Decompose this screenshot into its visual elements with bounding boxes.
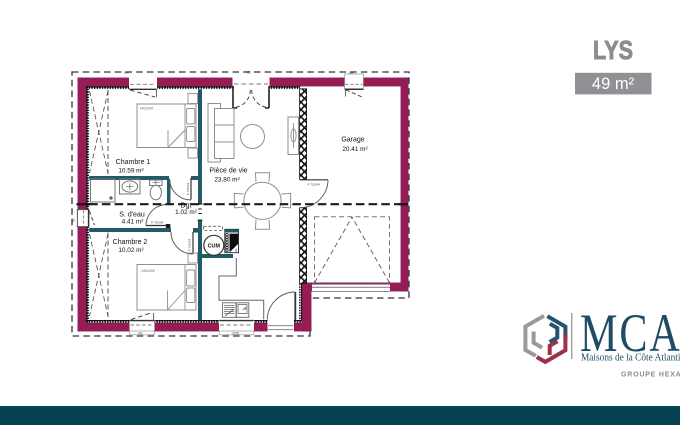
svg-text:VB: VB <box>246 71 251 75</box>
svg-text:1.02 m²: 1.02 m² <box>175 209 197 216</box>
svg-text:S. d'eau: S. d'eau <box>119 212 145 219</box>
svg-text:LYS: LYS <box>593 35 633 65</box>
svg-text:CUM: CUM <box>208 243 221 249</box>
svg-text:20.41 m²: 20.41 m² <box>342 146 367 153</box>
svg-text:P 75/204: P 75/204 <box>308 183 321 187</box>
svg-text:10.59 m²: 10.59 m² <box>118 168 143 175</box>
svg-text:Chambre 1: Chambre 1 <box>116 159 151 166</box>
svg-text:Maisons de la Côte Atlantique: Maisons de la Côte Atlantique <box>581 352 680 364</box>
svg-text:VR: VR <box>124 71 129 75</box>
svg-text:60: 60 <box>72 218 76 222</box>
svg-text:23.80 m²: 23.80 m² <box>214 177 239 184</box>
svg-text:Garage: Garage <box>341 137 364 144</box>
svg-text:10.02 m²: 10.02 m² <box>118 247 143 254</box>
svg-text:2F60: 2F60 <box>232 332 239 336</box>
svg-text:140x200: 140x200 <box>141 269 155 273</box>
svg-text:VB: VB <box>349 71 354 75</box>
svg-text:P 75/204: P 75/204 <box>151 221 164 225</box>
svg-text:Chambre 2: Chambre 2 <box>113 239 148 246</box>
svg-text:P 75/204: P 75/204 <box>188 238 192 251</box>
svg-text:Pièce de vie: Pièce de vie <box>209 168 247 175</box>
svg-text:VR: VR <box>138 332 143 336</box>
svg-text:49 m²: 49 m² <box>592 75 635 93</box>
svg-text:4.41 m²: 4.41 m² <box>122 219 144 226</box>
svg-text:GROUPE HEXAOM: GROUPE HEXAOM <box>621 372 680 379</box>
svg-text:P 75/204: P 75/204 <box>186 182 190 195</box>
svg-text:140x200: 140x200 <box>140 107 154 111</box>
